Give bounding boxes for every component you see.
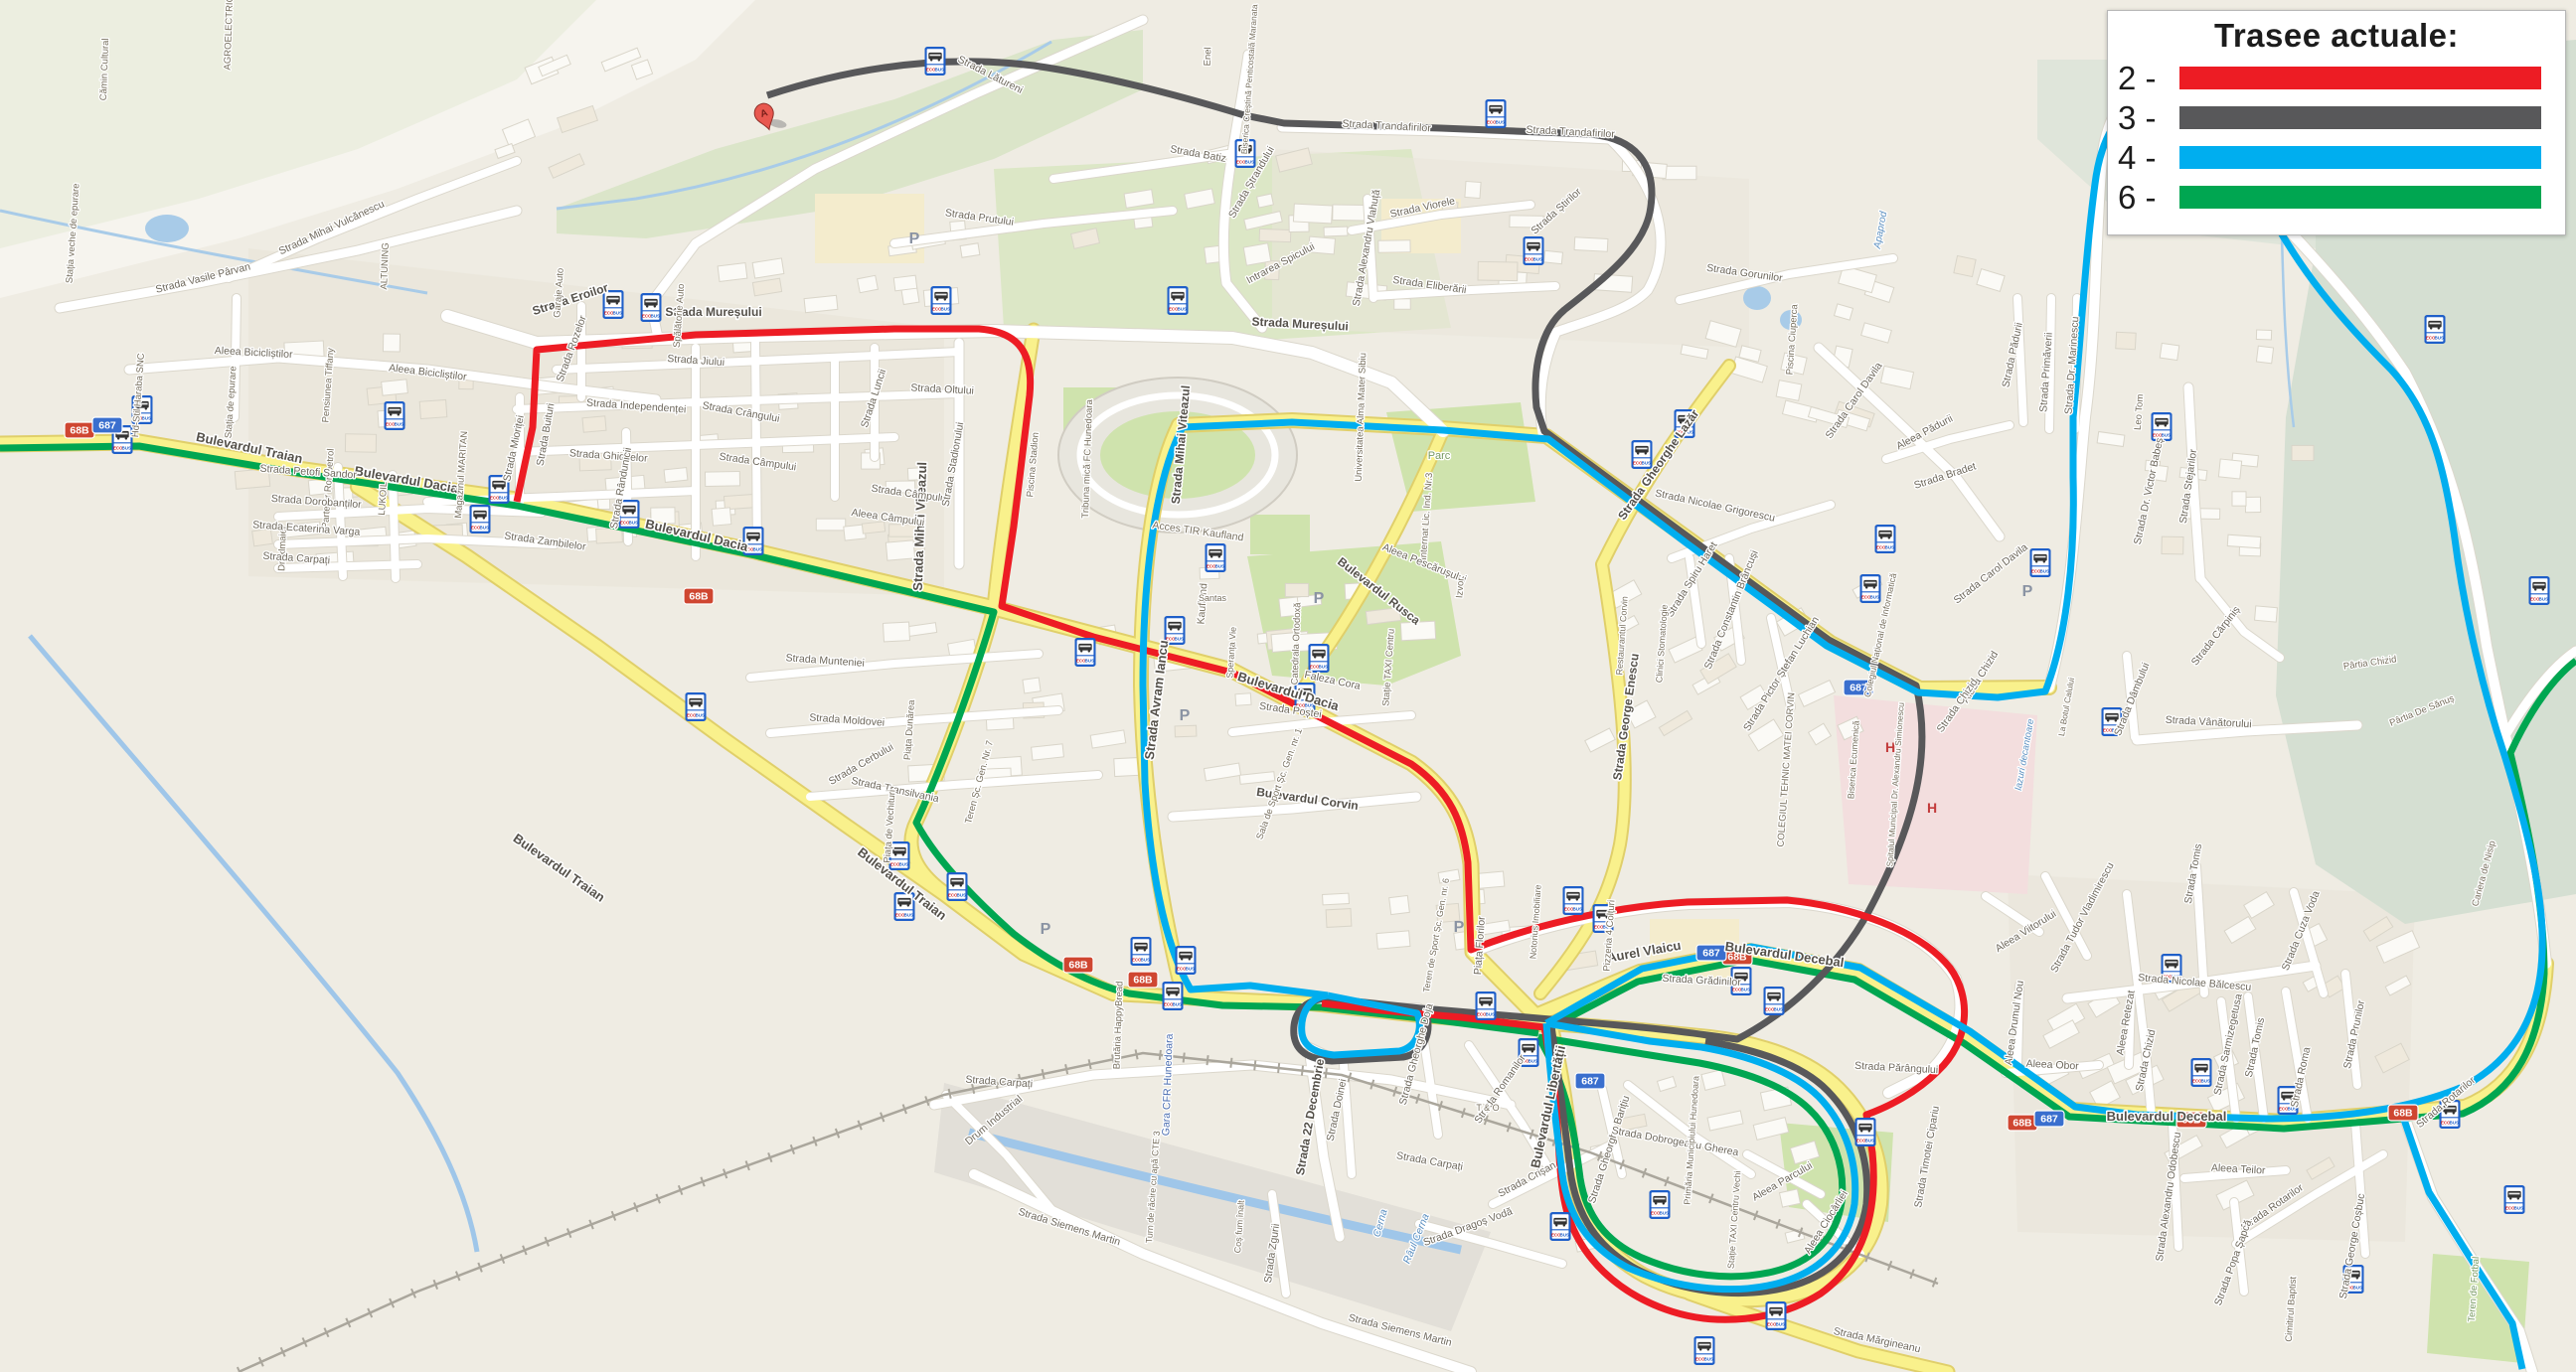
bus-stop-icon[interactable] bbox=[1309, 645, 1328, 672]
bus-stop-icon[interactable] bbox=[1694, 1337, 1713, 1364]
bus-stop-icon[interactable] bbox=[925, 48, 944, 75]
bus-stop-icon[interactable] bbox=[1766, 1302, 1785, 1329]
bus-stop-icon[interactable] bbox=[931, 287, 950, 314]
road-shield-687: 687 bbox=[1696, 945, 1726, 961]
street-label: Bulevardul Decebal bbox=[2107, 1109, 2227, 1124]
svg-text:68B: 68B bbox=[70, 425, 89, 437]
bus-stop-icon[interactable] bbox=[2152, 413, 2171, 440]
bus-stop-icon[interactable] bbox=[1131, 938, 1150, 965]
route-color-bar bbox=[2179, 186, 2541, 209]
bus-stop-icon[interactable] bbox=[1563, 887, 1582, 914]
road-shield-687: 687 bbox=[2034, 1111, 2064, 1127]
svg-text:68B: 68B bbox=[1133, 975, 1153, 987]
svg-text:68B: 68B bbox=[2012, 1118, 2032, 1130]
parking-icon: P bbox=[1454, 919, 1465, 936]
road-shield-68B: 68B bbox=[2388, 1105, 2418, 1121]
bus-stop-icon[interactable] bbox=[641, 294, 660, 321]
hospital-icon: H bbox=[1927, 800, 1937, 816]
bus-stop-icon[interactable] bbox=[1860, 575, 1879, 602]
road-shield-68B: 68B bbox=[1128, 972, 1158, 988]
bus-stop-icon[interactable] bbox=[2504, 1186, 2523, 1213]
street-label: Parc bbox=[1428, 450, 1451, 462]
legend-row-route-4: 4 - bbox=[2118, 141, 2555, 174]
bus-stop-icon[interactable] bbox=[1524, 237, 1542, 264]
poi-label: LUKOIL bbox=[377, 482, 390, 516]
bus-stop-icon[interactable] bbox=[1550, 1213, 1569, 1240]
bus-stop-icon[interactable] bbox=[1486, 100, 1505, 127]
bus-stop-icon[interactable] bbox=[947, 873, 966, 900]
legend-panel: Trasee actuale: 2 -3 -4 -6 - bbox=[2107, 10, 2566, 235]
bus-stop-icon[interactable] bbox=[2030, 549, 2049, 576]
bus-stop-icon[interactable] bbox=[1632, 441, 1651, 468]
map-stage: ECO BUS bbox=[0, 0, 2576, 1372]
svg-text:687: 687 bbox=[1581, 1076, 1599, 1088]
poi-label: Santas bbox=[1199, 593, 1227, 603]
poi-label: T & O bbox=[1476, 1103, 1499, 1113]
route-number-label: 3 - bbox=[2118, 101, 2179, 134]
bus-stop-icon[interactable] bbox=[1476, 992, 1495, 1019]
bus-stop-icon[interactable] bbox=[2529, 577, 2548, 604]
bus-stop-icon[interactable] bbox=[1206, 544, 1224, 571]
parking-icon: P bbox=[909, 230, 920, 247]
bus-stop-icon[interactable] bbox=[385, 402, 403, 429]
route-number-label: 4 - bbox=[2118, 141, 2179, 174]
road-shield-68B: 68B bbox=[684, 588, 714, 604]
poi-label: ALTUNING bbox=[379, 242, 392, 290]
route-number-label: 2 - bbox=[2118, 62, 2179, 94]
parking-icon: P bbox=[1314, 590, 1325, 607]
legend-row-route-6: 6 - bbox=[2118, 181, 2555, 214]
bus-stop-icon[interactable] bbox=[470, 506, 489, 533]
road-shield-68B: 68B bbox=[1063, 957, 1093, 973]
poi-label: Enel bbox=[1203, 47, 1214, 66]
svg-text:687: 687 bbox=[1702, 948, 1720, 960]
svg-text:687: 687 bbox=[98, 420, 116, 432]
route-color-bar bbox=[2179, 67, 2541, 89]
bus-stop-icon[interactable] bbox=[1165, 617, 1184, 644]
legend-title: Trasee actuale: bbox=[2118, 17, 2555, 55]
legend-rows: 2 -3 -4 -6 - bbox=[2118, 62, 2555, 214]
route-number-label: 6 - bbox=[2118, 181, 2179, 214]
bus-stop-icon[interactable] bbox=[1075, 639, 1094, 666]
road-shield-68B: 68B bbox=[2008, 1115, 2037, 1131]
poi-label: Cămin Cultural bbox=[98, 38, 111, 100]
bus-stop-icon[interactable] bbox=[1764, 988, 1783, 1014]
bus-stop-icon[interactable] bbox=[603, 291, 622, 318]
bus-stop-icon[interactable] bbox=[1163, 983, 1182, 1009]
bus-stop-icon[interactable] bbox=[1855, 1119, 1874, 1145]
svg-text:68B: 68B bbox=[689, 591, 709, 603]
bus-stop-icon[interactable] bbox=[2425, 316, 2444, 343]
svg-text:68B: 68B bbox=[2393, 1108, 2413, 1120]
bus-stop-icon[interactable] bbox=[1176, 947, 1195, 974]
svg-text:687: 687 bbox=[2040, 1114, 2058, 1126]
bus-stop-icon[interactable] bbox=[1650, 1191, 1669, 1218]
bus-stop-icon[interactable] bbox=[2191, 1059, 2210, 1086]
route-color-bar bbox=[2179, 146, 2541, 169]
road-shield-68B: 68B bbox=[65, 422, 94, 438]
route-color-bar bbox=[2179, 106, 2541, 129]
bus-stop-icon[interactable] bbox=[1875, 526, 1894, 552]
legend-row-route-2: 2 - bbox=[2118, 62, 2555, 94]
parking-icon: P bbox=[2022, 583, 2033, 600]
road-shield-687: 687 bbox=[92, 417, 122, 433]
bus-stop-icon[interactable] bbox=[686, 693, 705, 720]
svg-text:68B: 68B bbox=[1068, 960, 1088, 972]
bus-stop-icon[interactable] bbox=[1168, 287, 1187, 314]
legend-row-route-3: 3 - bbox=[2118, 101, 2555, 134]
parking-icon: P bbox=[1180, 707, 1191, 724]
road-shield-687: 687 bbox=[1575, 1073, 1605, 1089]
poi-label: Izvor bbox=[1454, 577, 1466, 598]
parking-icon: P bbox=[1041, 921, 1051, 938]
